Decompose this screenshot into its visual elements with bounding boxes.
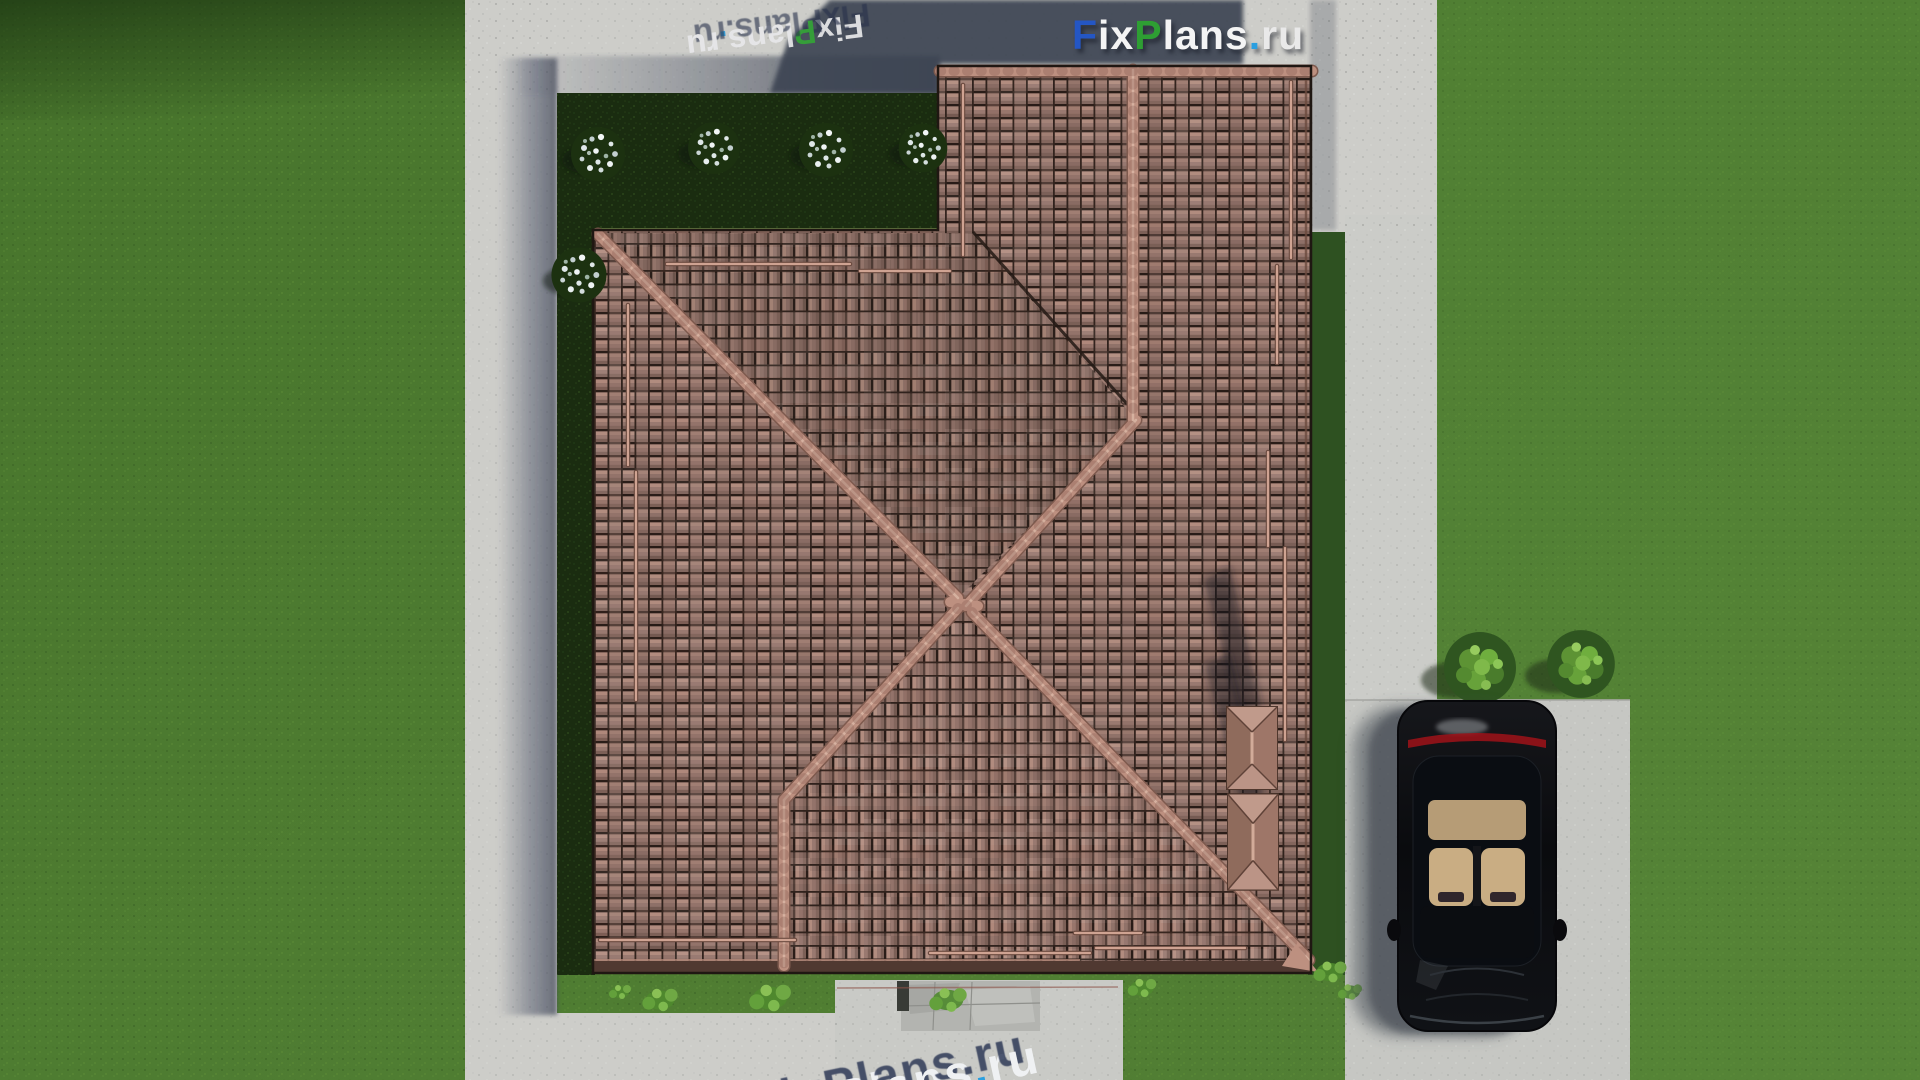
chimney-vent	[1227, 707, 1277, 789]
car-rear-seat	[1428, 800, 1526, 840]
chimney-vent	[1228, 794, 1278, 889]
grass-strip-right	[1308, 232, 1345, 975]
fixplans-logo: FixPlans.ru	[1072, 12, 1304, 59]
scene	[0, 0, 1920, 1080]
car-dashboard	[1420, 906, 1534, 958]
car-console	[1473, 846, 1481, 906]
grass-shadow-corner	[0, 0, 470, 120]
render-canvas: FixPlans.ru FixPlans.ru FixPlans.ru	[0, 0, 1920, 1080]
car	[1352, 701, 1567, 1036]
porch-step-gap	[897, 981, 909, 1011]
car-mirror	[1553, 919, 1567, 941]
car-mirror	[1387, 919, 1401, 941]
